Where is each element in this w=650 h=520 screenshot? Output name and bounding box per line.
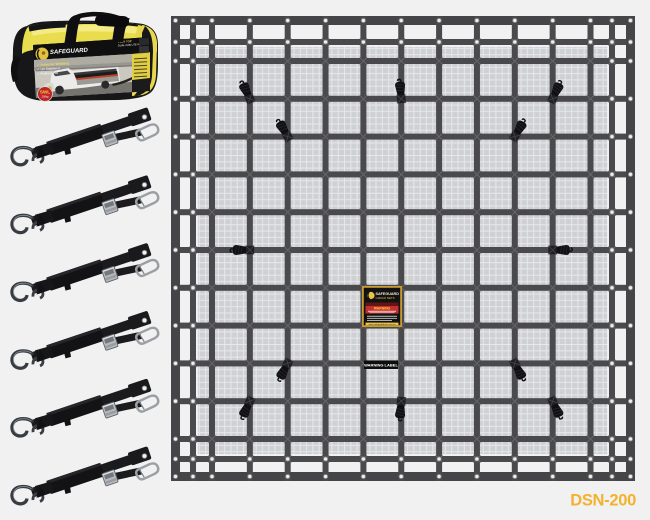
- svg-text:CARGO NETS: CARGO NETS: [376, 296, 395, 300]
- svg-text:DSN-200: DSN-200: [570, 492, 636, 510]
- svg-text:SWL: SWL: [40, 90, 50, 95]
- svg-text:WARNING LABEL: WARNING LABEL: [364, 363, 398, 368]
- svg-text:WARNING: WARNING: [374, 307, 391, 311]
- svg-text:200kg: 200kg: [42, 96, 49, 99]
- svg-text:www.safeguardnets.com.au: www.safeguardnets.com.au: [369, 323, 397, 326]
